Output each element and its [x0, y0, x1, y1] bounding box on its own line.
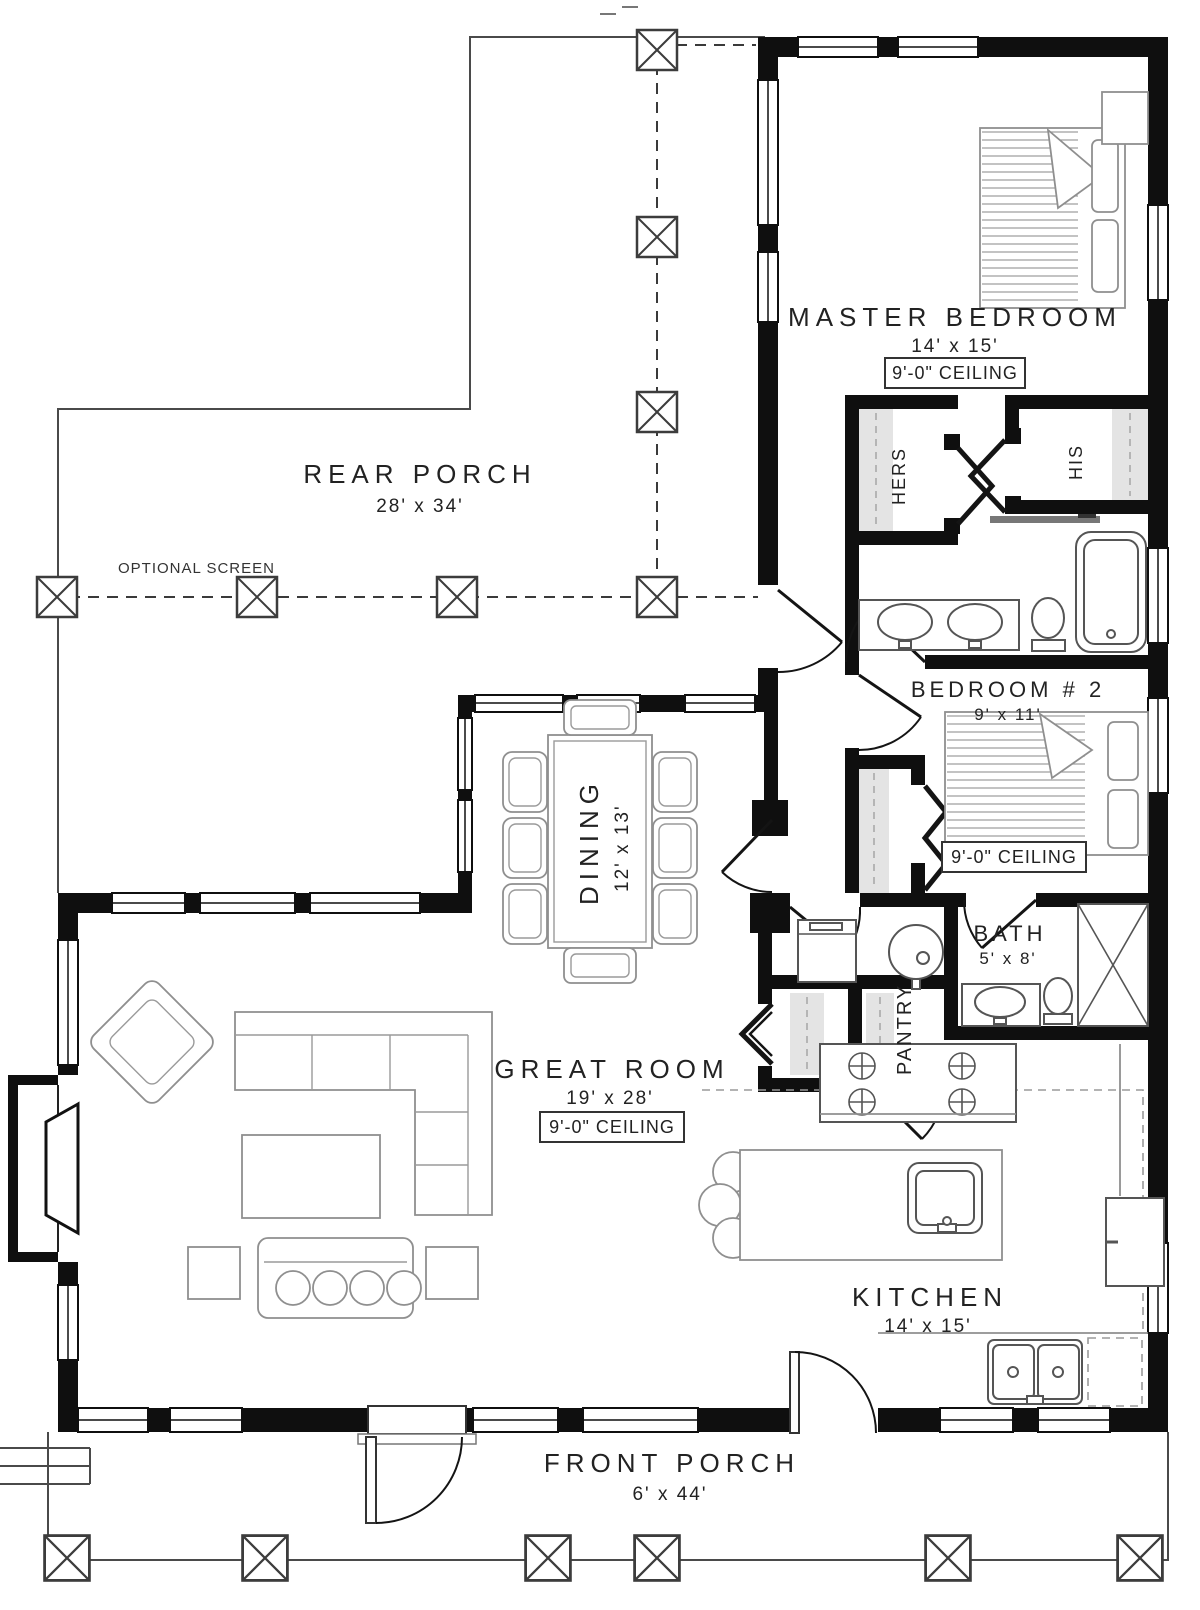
- kitchen-fixtures: [699, 1044, 1164, 1406]
- porch-post: [1118, 1536, 1163, 1581]
- front-door: [358, 1406, 476, 1523]
- great-room-ceiling: 9'-0" CEILING: [549, 1117, 675, 1137]
- great-room-furniture: [87, 977, 492, 1318]
- nightstand: [1102, 92, 1148, 144]
- kitchen-dims: 14' x 15': [884, 1316, 972, 1337]
- porch-post: [526, 1536, 571, 1581]
- porch-post: [37, 577, 77, 617]
- bedroom2-label: BEDROOM # 2: [911, 677, 1105, 702]
- master-bed: [980, 92, 1148, 308]
- sink: [878, 604, 932, 640]
- rear-entry-door: [778, 590, 842, 672]
- kitchen: KITCHEN 14' x 15': [852, 1282, 1008, 1337]
- great-room-dims: 19' x 28': [566, 1088, 654, 1109]
- dining-dims: 12' x 13': [612, 804, 633, 892]
- master-bedroom-label: MASTER BEDROOM: [788, 302, 1122, 332]
- range: [820, 1044, 1016, 1122]
- porch-post: [637, 217, 677, 257]
- front-porch-label: FRONT PORCH: [544, 1448, 800, 1478]
- bath: BATH 5' x 8': [973, 921, 1046, 968]
- porch-post: [237, 577, 277, 617]
- porch-post: [437, 577, 477, 617]
- optional-screen-label: OPTIONAL SCREEN: [118, 560, 275, 577]
- porch-post: [637, 577, 677, 617]
- porch-post: [45, 1536, 90, 1581]
- front-porch-dims: 6' x 44': [632, 1484, 707, 1505]
- porch-post: [635, 1536, 680, 1581]
- kitchen-label: KITCHEN: [852, 1282, 1008, 1312]
- master-bedroom-ceiling: 9'-0" CEILING: [892, 363, 1018, 383]
- sink: [948, 604, 1002, 640]
- pantry-label: PANTRY: [894, 984, 916, 1075]
- accent-chair: [87, 977, 217, 1107]
- porch-post: [243, 1536, 288, 1581]
- front-porch: FRONT PORCH 6' x 44': [0, 1432, 1168, 1580]
- his-closet-label: HIS: [1066, 444, 1086, 480]
- barn-door: [990, 514, 1100, 523]
- master-bath-fixtures: [859, 532, 1146, 652]
- coat-closet-bifold: [750, 1012, 772, 1056]
- master-bedroom-dims: 14' x 15': [911, 336, 999, 357]
- fireplace: [46, 1085, 78, 1252]
- great-room: GREAT ROOM 19' x 28' 9'-0" CEILING: [494, 1054, 729, 1142]
- side-table: [188, 1247, 240, 1299]
- master-bedroom: MASTER BEDROOM 14' x 15' 9'-0" CEILING: [788, 302, 1122, 388]
- bedroom2-dims: 9' x 11': [974, 705, 1042, 724]
- floor-plan-drawing: REAR PORCH 28' x 34' OPTIONAL SCREEN FRO…: [0, 0, 1200, 1610]
- bedroom2-ceiling: 9'-0" CEILING: [951, 847, 1077, 867]
- porch-post: [637, 392, 677, 432]
- hers-closet-label: HERS: [889, 447, 909, 505]
- kitchen-door: [790, 1352, 876, 1433]
- porch-post: [926, 1536, 971, 1581]
- coffee-table: [242, 1135, 380, 1218]
- sink: [975, 987, 1025, 1017]
- toilet: [1044, 978, 1072, 1014]
- dining-label: DINING: [574, 778, 604, 905]
- bedroom2-closet-door: [925, 786, 946, 890]
- great-room-label: GREAT ROOM: [494, 1054, 729, 1084]
- bath-label: BATH: [973, 921, 1046, 946]
- porch-post: [637, 30, 677, 70]
- bedroom2-bed: [945, 712, 1148, 855]
- side-table: [426, 1247, 478, 1299]
- rear-porch-label: REAR PORCH: [303, 459, 536, 489]
- dryer: [889, 925, 943, 979]
- floor-plan-sheet: REAR PORCH 28' x 34' OPTIONAL SCREEN FRO…: [0, 0, 1200, 1610]
- coat-closet-bifold: [742, 1004, 772, 1064]
- rear-porch-dims: 28' x 34': [376, 496, 464, 517]
- bath-dims: 5' x 8': [979, 949, 1036, 968]
- dishwasher: [1088, 1338, 1142, 1406]
- toilet: [1032, 598, 1064, 638]
